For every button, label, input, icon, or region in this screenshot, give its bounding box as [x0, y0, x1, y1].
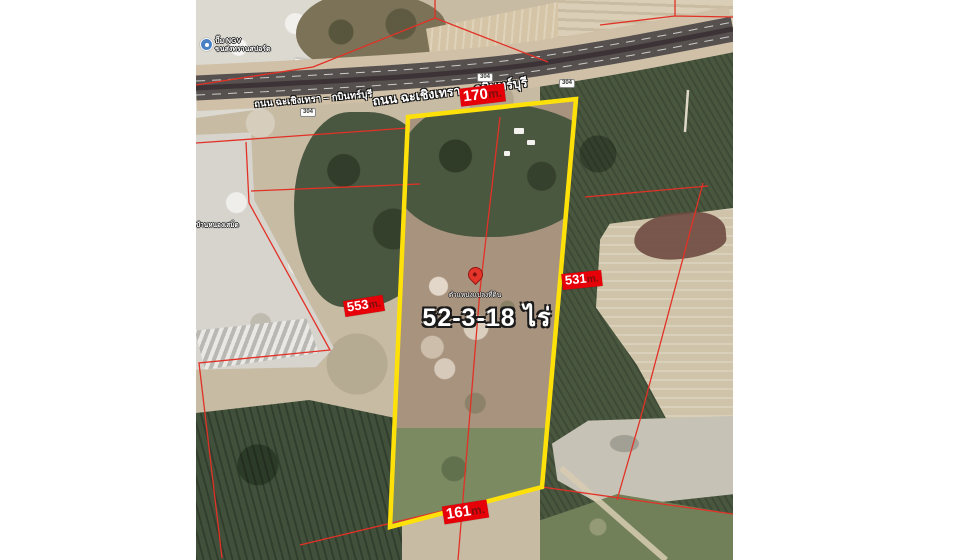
area-size-label: 52-3-18 ไร่: [382, 298, 592, 338]
poi-label: ปั๊ม NGV ขนส่งทรานสปอร์ต: [215, 38, 271, 54]
satellite-map-image: ถนน ฉะเชิงเทรา – กบินทร์บุรี ถนน ฉะเชิงเ…: [196, 0, 733, 560]
route-shield-304: 304: [300, 108, 316, 117]
dirt-track: [685, 90, 688, 132]
place-label: บ้านหนองเสม็ด: [196, 220, 239, 230]
dirt-track: [561, 468, 666, 560]
measurement-value: 531: [564, 271, 587, 288]
route-shield-304: 304: [477, 73, 493, 82]
area-value: 52-3-18: [422, 304, 515, 332]
poi-blue-dot-icon: [200, 38, 213, 51]
screenshot-canvas: ถนน ฉะเชิงเทรา – กบินทร์บุรี ถนน ฉะเชิงเ…: [0, 0, 960, 560]
measurement-value: 170: [462, 85, 489, 105]
route-shield-304: 304: [559, 79, 575, 88]
measurement-unit: m.: [470, 502, 486, 518]
poi-marker: ปั๊ม NGV ขนส่งทรานสปอร์ต: [200, 38, 271, 54]
measurement-value: 553: [346, 296, 370, 314]
measurement-value: 161: [445, 502, 472, 523]
poi-label-line2: ขนส่งทรานสปอร์ต: [215, 46, 271, 54]
area-unit: ไร่: [524, 304, 552, 332]
measurement-unit: m.: [586, 273, 599, 285]
measurement-unit: m.: [487, 86, 503, 102]
poi-label-line1: ปั๊ม NGV: [215, 38, 271, 46]
measurement-unit: m.: [368, 298, 382, 311]
